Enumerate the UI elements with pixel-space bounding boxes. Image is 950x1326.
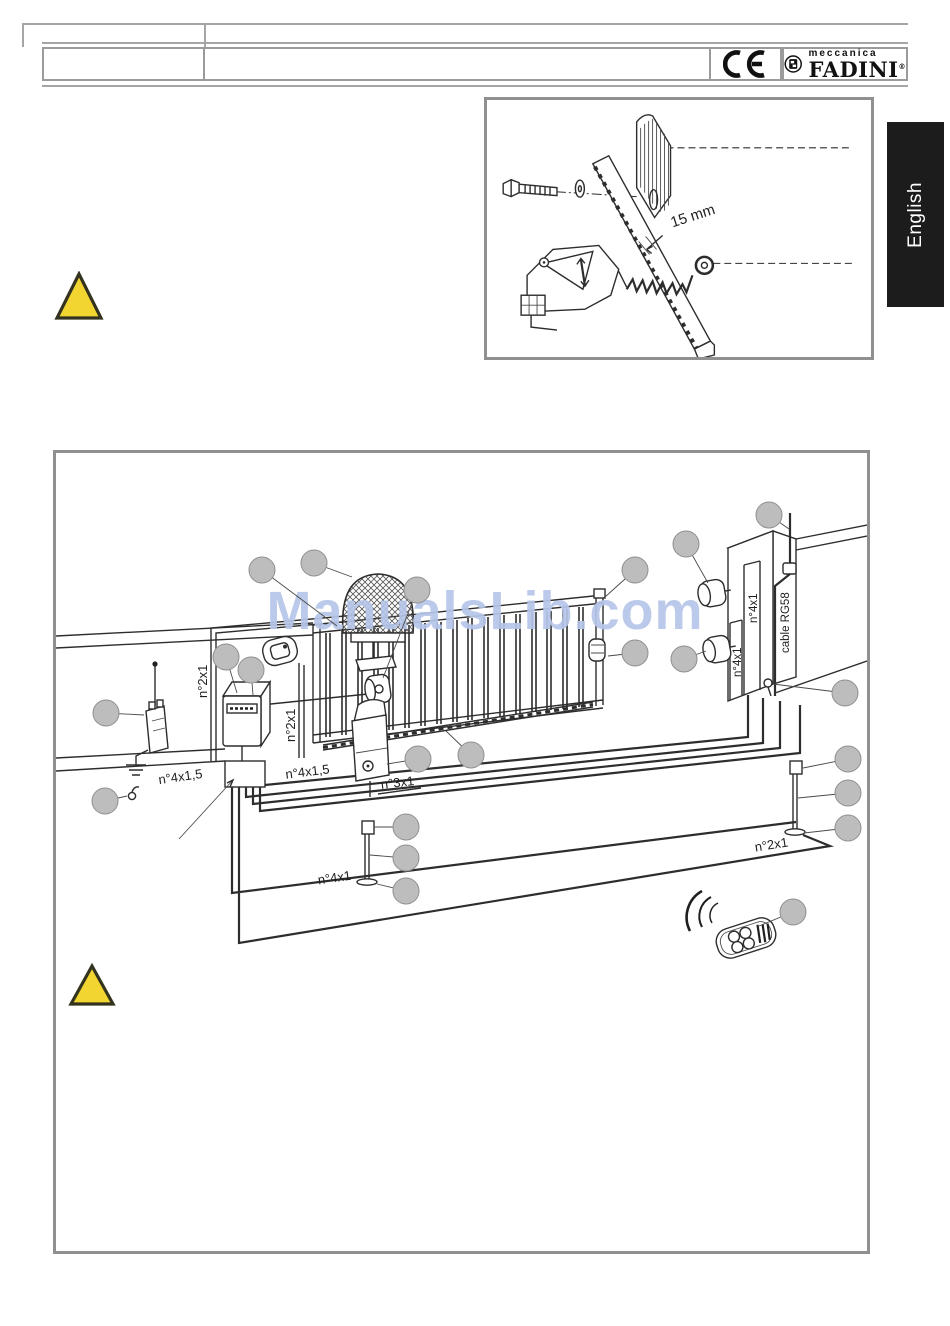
- label-lamp-duct: n°2x1: [195, 665, 210, 698]
- top-rule-stub-left: [22, 23, 24, 47]
- label-left-mains: n°4x1,5: [157, 766, 203, 787]
- top-rule: [22, 23, 908, 25]
- label-selector-duct: n°2x1: [283, 709, 298, 742]
- installation-diagram-figure: ManualsLib.com: [53, 450, 870, 1254]
- language-tab-label: English: [905, 182, 927, 248]
- warning-triangle-icon: [71, 966, 113, 1004]
- label-post-cable: n°4x1: [317, 868, 352, 888]
- washer-icon: [575, 180, 584, 197]
- header-cell-brand: meccanica FADINI®: [782, 47, 908, 81]
- limit-switch-assembly: [521, 245, 627, 330]
- dimension-label: 15 mm: [669, 201, 718, 231]
- callout-circle: [301, 550, 327, 576]
- callout-circle: [393, 845, 419, 871]
- cable-clip-icon: [128, 787, 139, 800]
- radio-waves-icon: [687, 891, 718, 931]
- reference-dashes: [520, 148, 852, 264]
- callout-circle: [780, 899, 806, 925]
- callout-circle: [458, 742, 484, 768]
- callout-circle: [835, 780, 861, 806]
- callout-circle: [835, 815, 861, 841]
- callout-circle: [671, 646, 697, 672]
- language-tab-english: English: [887, 122, 944, 307]
- callout-circle: [835, 746, 861, 772]
- callout-circle: [832, 680, 858, 706]
- callout-circle: [93, 700, 119, 726]
- callout-circle: [393, 878, 419, 904]
- manual-page: meccanica FADINI® English: [0, 0, 950, 1326]
- cable-bundle: [232, 695, 830, 943]
- label-pillar-duct-upper: n°4x1: [748, 593, 760, 623]
- watermark-text: ManualsLib.com: [266, 581, 703, 641]
- gear-motor: [352, 700, 389, 781]
- limit-bracket: [589, 639, 605, 661]
- callout-circle: [673, 531, 699, 557]
- callout-circle: [249, 557, 275, 583]
- header-cell-ce: [709, 47, 782, 81]
- callout-circle: [213, 644, 239, 670]
- callout-circle: [756, 502, 782, 528]
- callout-circle: [405, 746, 431, 772]
- rack-detail-figure: 15 mm: [484, 97, 874, 360]
- label-ground-loop: n°2x1: [754, 835, 789, 855]
- label-antenna-cable: cable RG58: [780, 592, 792, 653]
- brand-fadini: FADINI®: [808, 59, 906, 80]
- warning-triangle-icon: [54, 271, 104, 328]
- header-top-rule: [42, 42, 908, 44]
- bolt-icon: [503, 180, 557, 197]
- callout-circle: [238, 657, 264, 683]
- fadini-logo-icon: [784, 50, 802, 78]
- installation-diagram: ManualsLib.com: [56, 453, 867, 1251]
- rack-detail-drawing: 15 mm: [487, 100, 871, 357]
- callout-circle: [92, 788, 118, 814]
- callout-circle: [622, 640, 648, 666]
- registered-mark: ®: [899, 62, 907, 71]
- label-pillar-duct-lower: n°4x1: [732, 647, 744, 677]
- callout-circle: [622, 557, 648, 583]
- header-cell-middle: [203, 47, 711, 81]
- control-unit: [223, 682, 270, 761]
- header-cell-left: [42, 47, 205, 81]
- ce-mark-icon: [723, 50, 769, 78]
- callout-circle: [393, 814, 419, 840]
- header-bottom-rule: [42, 85, 908, 87]
- circuit-breaker: [146, 661, 168, 753]
- mounting-plate: [637, 115, 671, 218]
- callout-circle: [404, 577, 430, 603]
